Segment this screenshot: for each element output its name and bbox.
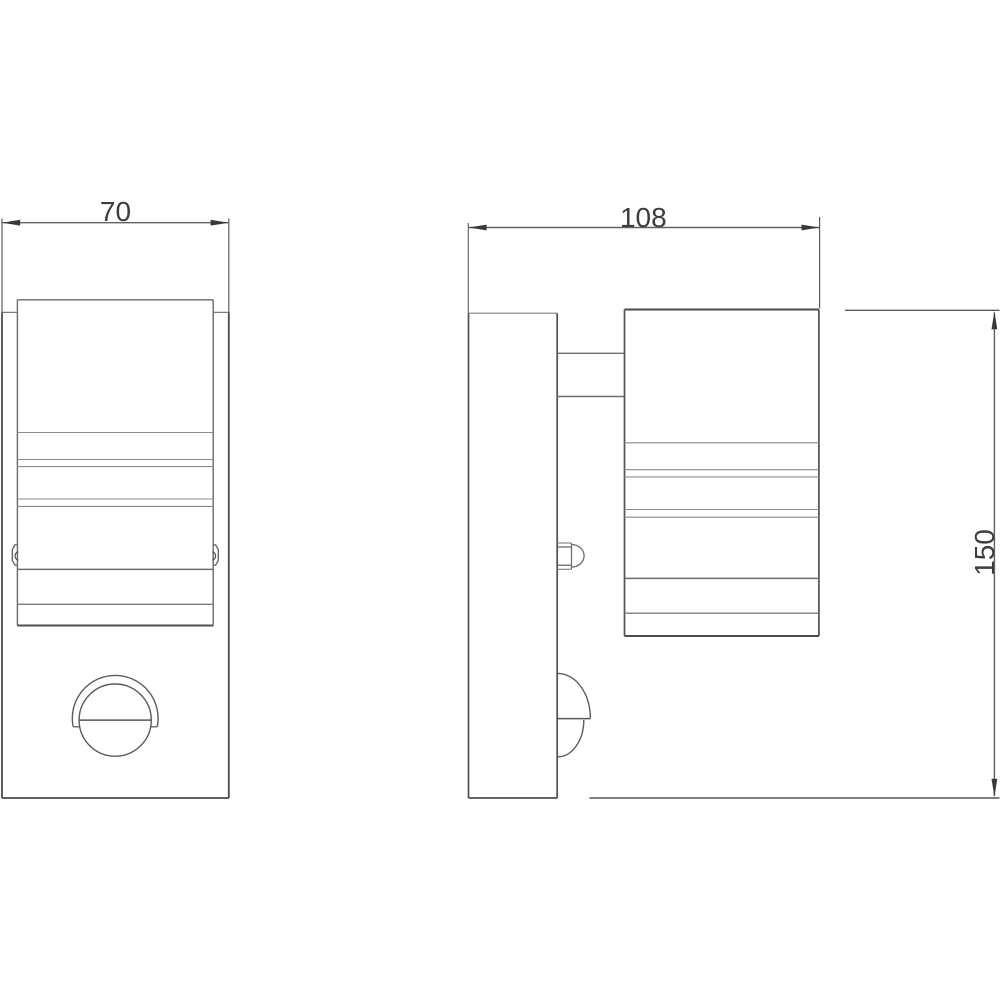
svg-text:108: 108	[620, 202, 667, 233]
svg-text:70: 70	[100, 196, 131, 227]
svg-text:150: 150	[969, 529, 1000, 576]
